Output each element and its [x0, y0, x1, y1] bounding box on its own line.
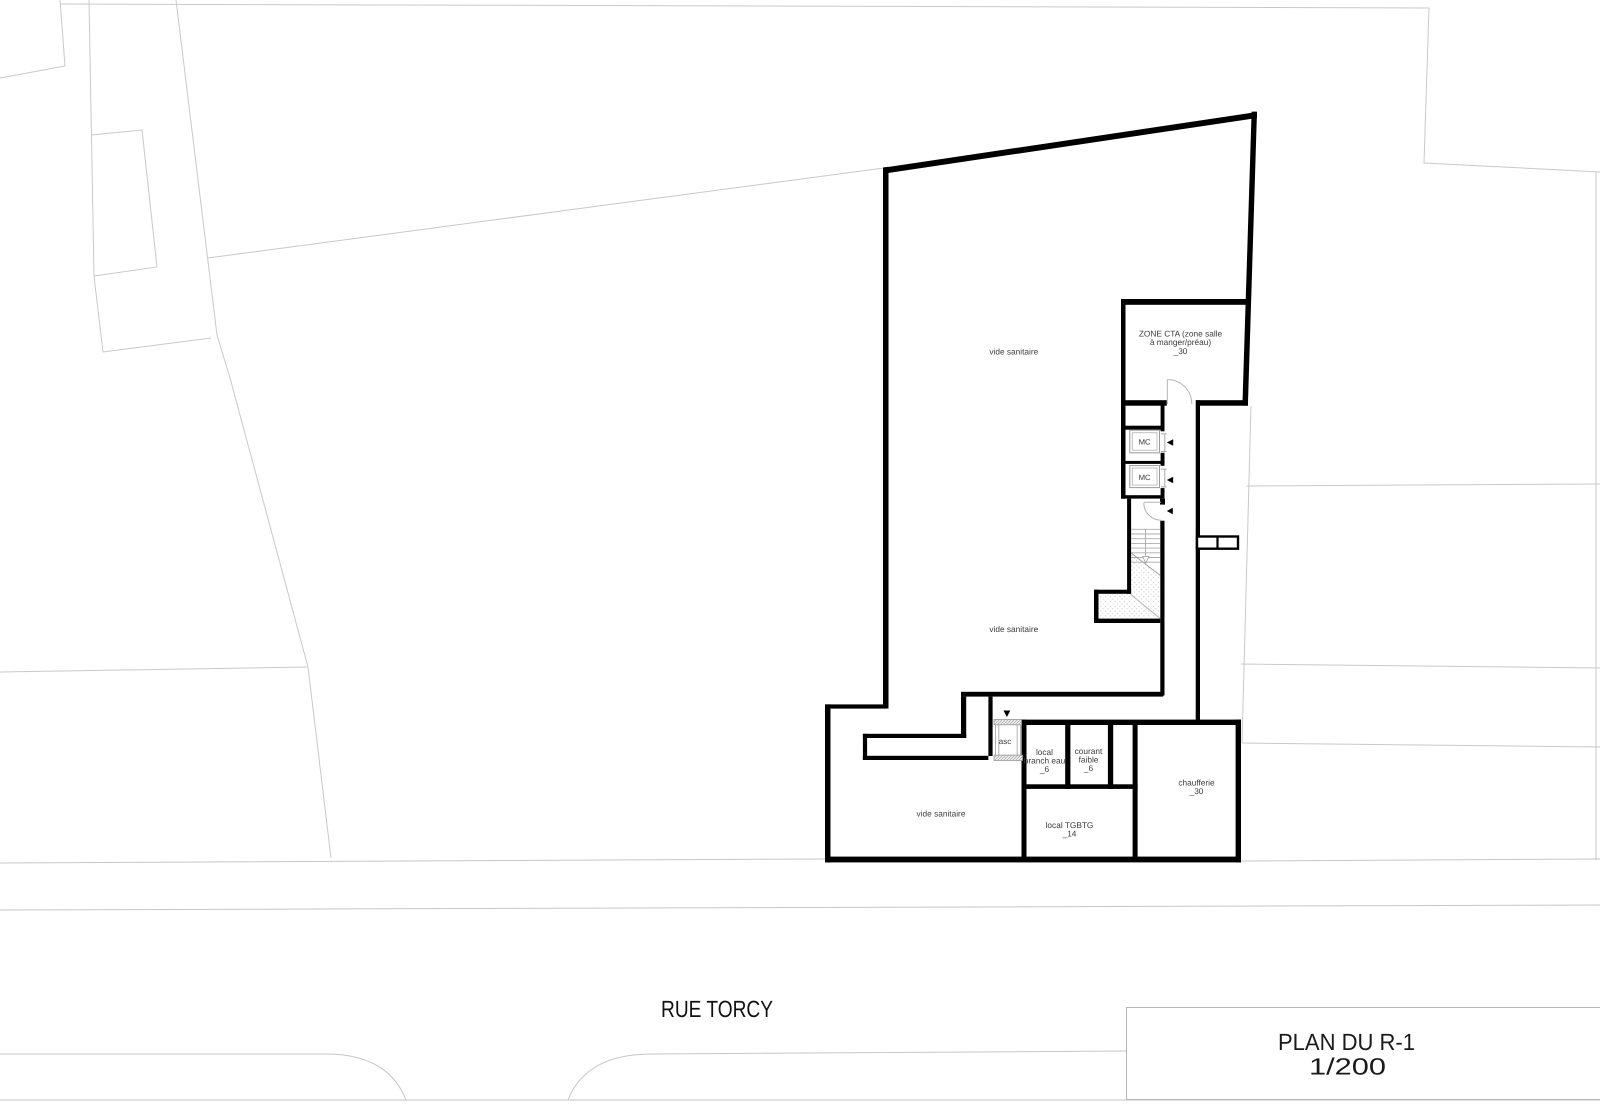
svg-text:asc: asc	[999, 737, 1011, 746]
svg-text:_30: _30	[1189, 786, 1204, 796]
svg-text:_6: _6	[1039, 764, 1050, 774]
svg-text:_14: _14	[1062, 829, 1077, 839]
svg-text:MC: MC	[1139, 473, 1151, 482]
svg-text:MC: MC	[1139, 438, 1151, 447]
svg-text:vide sanitaire: vide sanitaire	[917, 808, 966, 818]
svg-text:RUE TORCY: RUE TORCY	[661, 996, 773, 1022]
svg-text:_6: _6	[1083, 763, 1094, 773]
svg-text:PLAN DU R-1: PLAN DU R-1	[1278, 1029, 1415, 1055]
svg-text:vide sanitaire: vide sanitaire	[989, 346, 1038, 356]
svg-text:_30: _30	[1173, 346, 1188, 356]
svg-text:1/200: 1/200	[1309, 1054, 1386, 1080]
svg-text:vide sanitaire: vide sanitaire	[989, 624, 1038, 634]
